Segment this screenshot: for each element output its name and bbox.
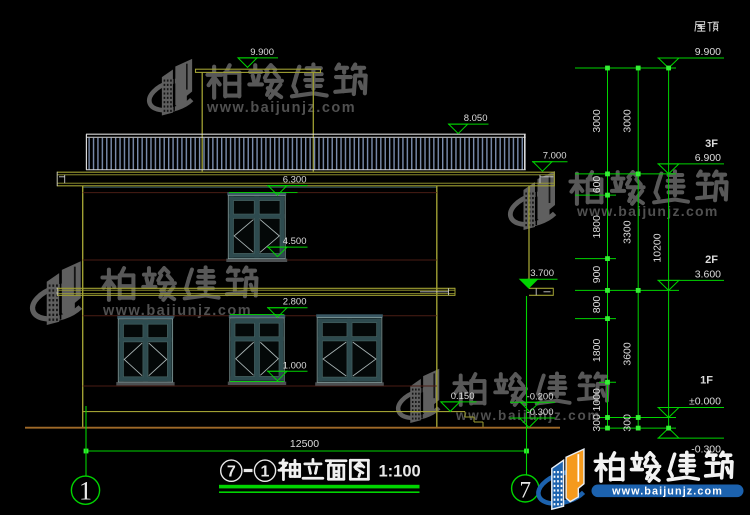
svg-text:1:100: 1:100: [379, 463, 421, 481]
svg-text:www.baijunjz.com: www.baijunjz.com: [611, 485, 723, 497]
svg-text:-0.200: -0.200: [527, 391, 554, 402]
svg-text:9.900: 9.900: [695, 46, 721, 58]
svg-text:12500: 12500: [290, 438, 319, 450]
svg-text:300: 300: [622, 414, 634, 432]
svg-text:6.300: 6.300: [283, 175, 307, 186]
svg-text:3.600: 3.600: [695, 268, 721, 280]
svg-text:10200: 10200: [652, 233, 664, 262]
svg-text:300: 300: [591, 414, 603, 432]
svg-text:4.500: 4.500: [283, 236, 307, 247]
svg-text:3F: 3F: [705, 138, 718, 150]
svg-text:1: 1: [79, 477, 92, 506]
svg-text:7: 7: [227, 464, 236, 481]
svg-text:800: 800: [591, 296, 603, 314]
svg-text:900: 900: [591, 266, 603, 284]
svg-text:9.900: 9.900: [250, 47, 274, 58]
svg-text:3.700: 3.700: [530, 268, 554, 279]
svg-text:1F: 1F: [700, 375, 713, 387]
svg-text:0.150: 0.150: [451, 391, 475, 402]
svg-text:±0.000: ±0.000: [689, 396, 721, 408]
svg-text:3300: 3300: [622, 220, 634, 244]
svg-text:2F: 2F: [705, 254, 718, 266]
svg-text:3600: 3600: [622, 342, 634, 366]
svg-text:6.900: 6.900: [695, 152, 721, 164]
svg-text:1: 1: [261, 464, 270, 481]
svg-text:7.000: 7.000: [543, 151, 567, 162]
svg-text:1800: 1800: [591, 215, 603, 239]
svg-text:7: 7: [519, 478, 531, 503]
svg-text:www.baijunjz.com: www.baijunjz.com: [206, 100, 356, 116]
svg-text:1800: 1800: [591, 339, 603, 363]
svg-text:1000: 1000: [591, 388, 603, 412]
svg-text:8.050: 8.050: [464, 113, 488, 124]
svg-text:-0.300: -0.300: [527, 407, 554, 418]
svg-text:2.800: 2.800: [283, 297, 307, 308]
svg-text:600: 600: [591, 176, 603, 194]
svg-text:3000: 3000: [622, 109, 634, 133]
svg-text:3000: 3000: [591, 109, 603, 133]
svg-text:1.000: 1.000: [283, 360, 307, 371]
